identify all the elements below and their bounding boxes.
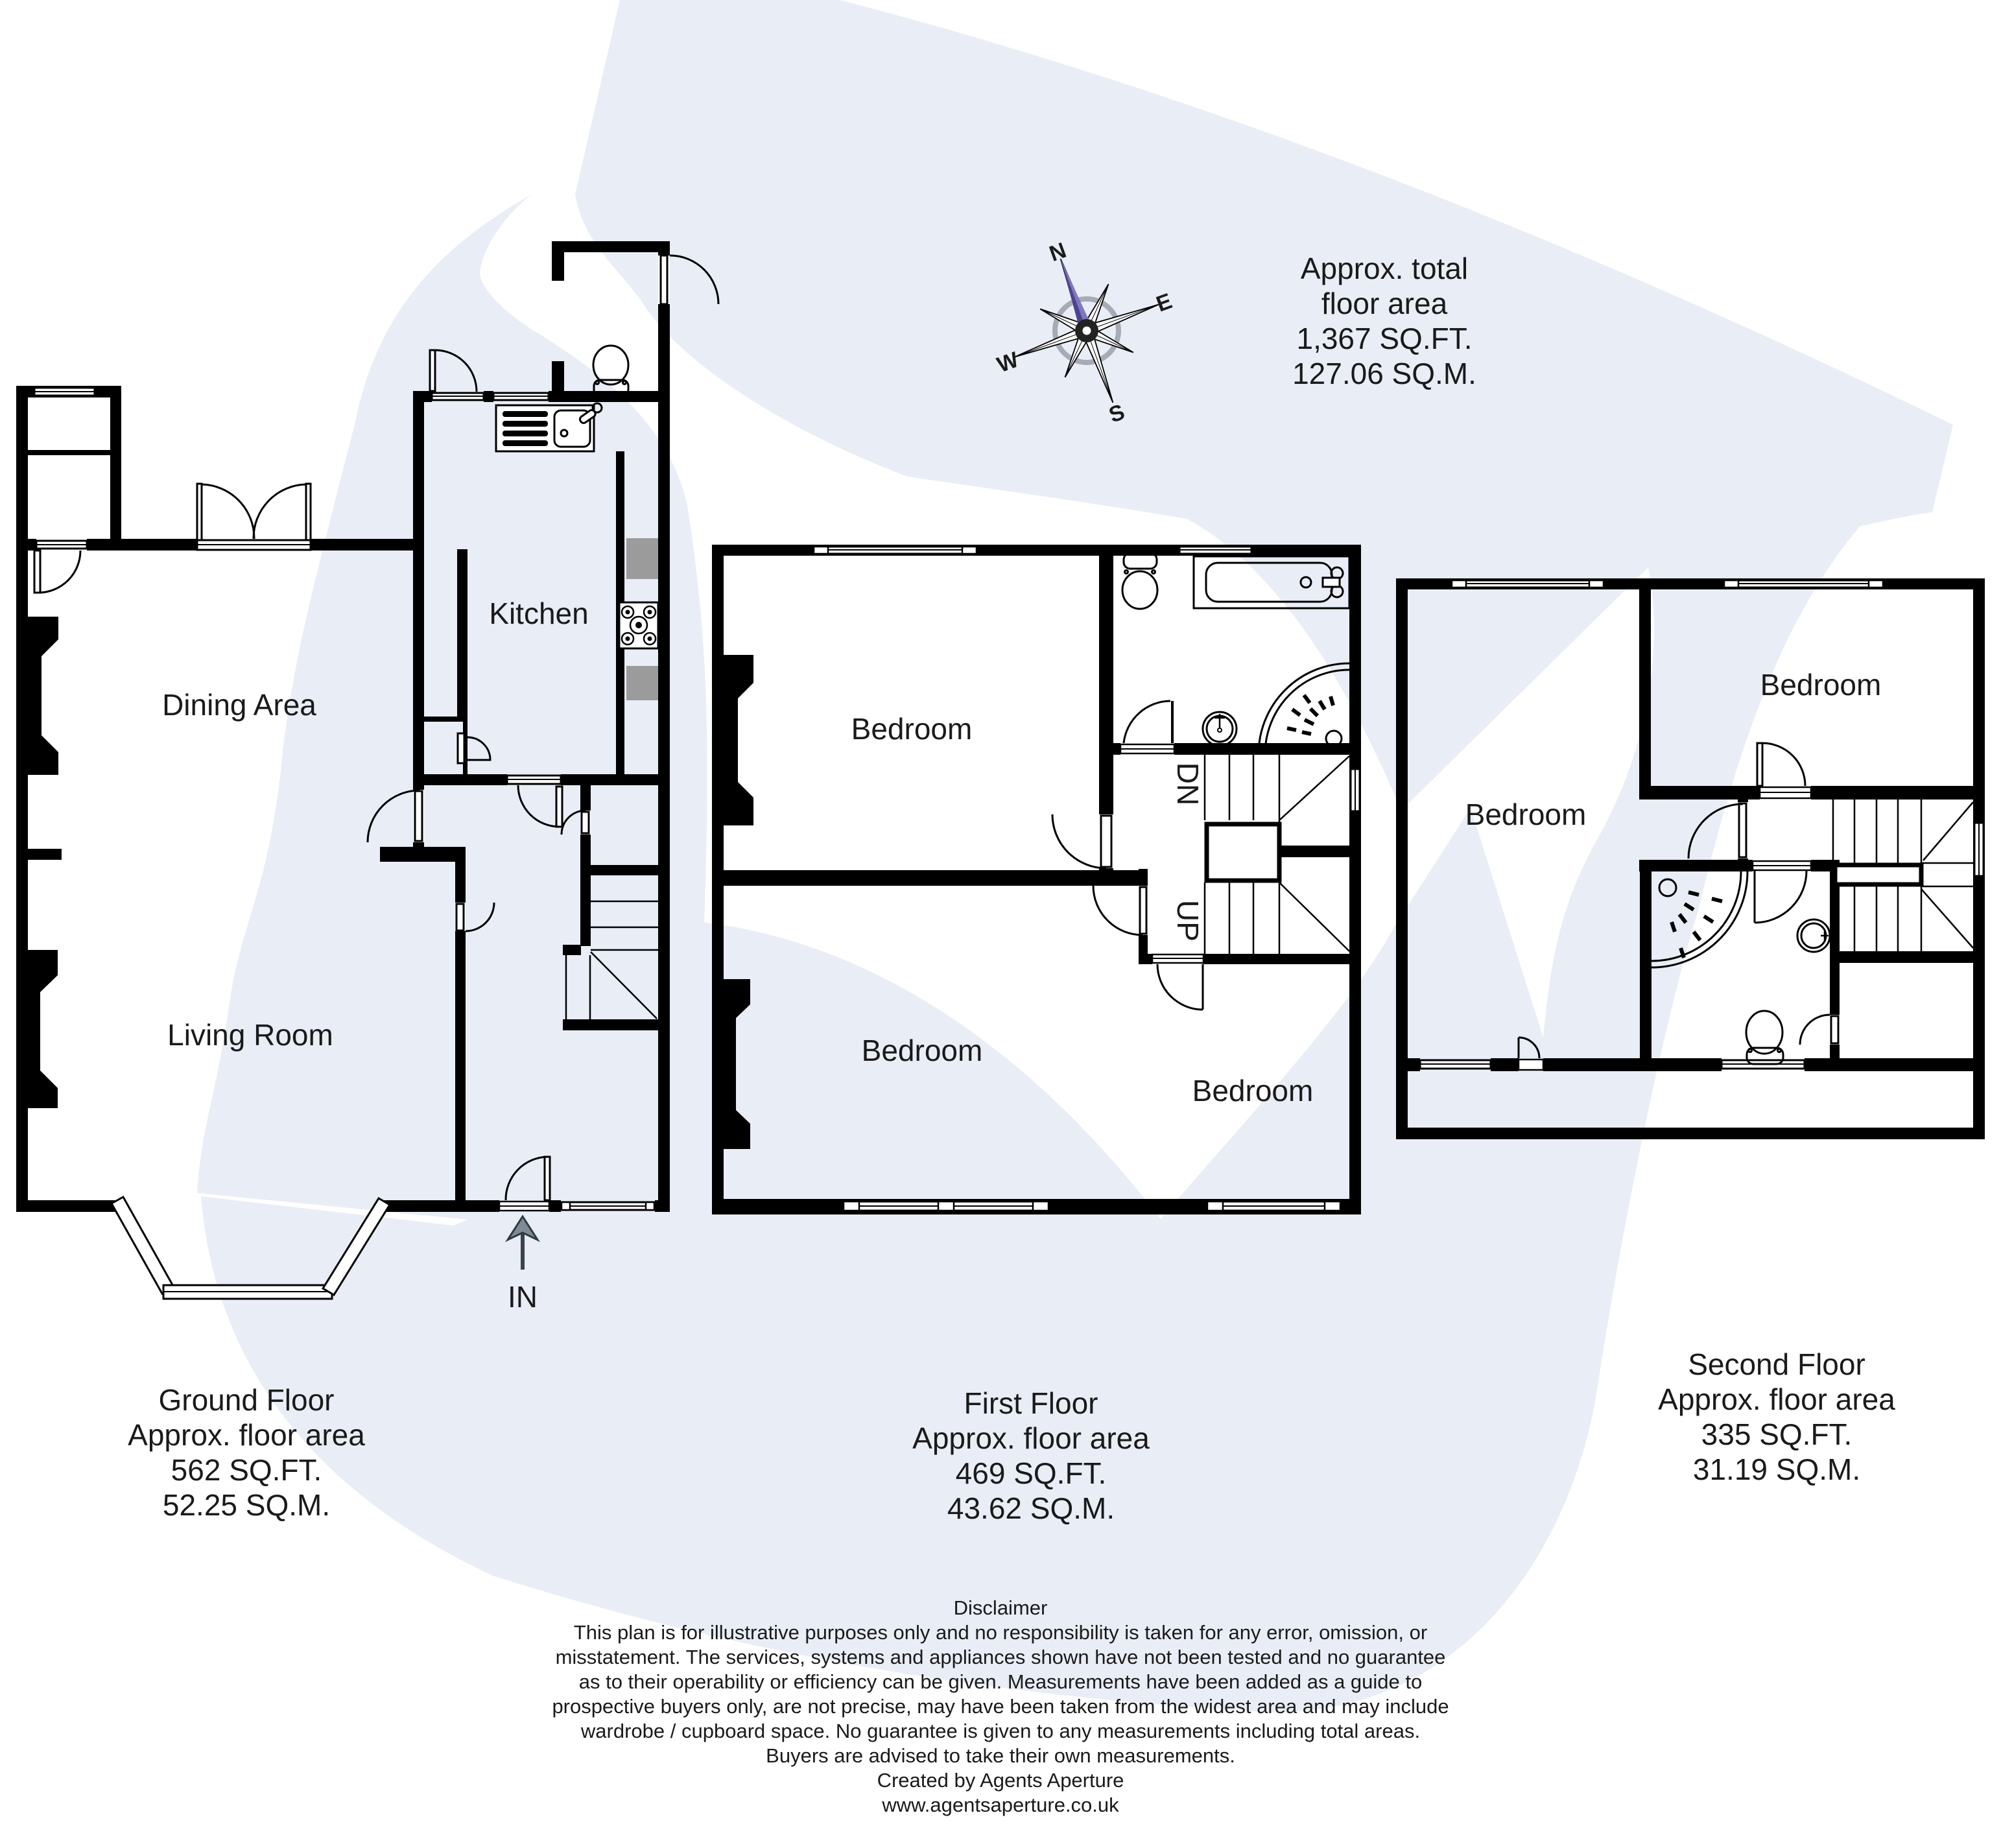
svg-text:Bedroom: Bedroom xyxy=(1465,798,1587,831)
svg-text:469 SQ.FT.: 469 SQ.FT. xyxy=(956,1456,1107,1490)
svg-text:335 SQ.FT.: 335 SQ.FT. xyxy=(1701,1417,1853,1451)
svg-text:Bedroom: Bedroom xyxy=(851,712,973,746)
svg-text:prospective buyers only, are n: prospective buyers only, are not precise… xyxy=(552,1695,1449,1718)
svg-text:as to their operability or eff: as to their operability or efficiency ca… xyxy=(579,1670,1423,1693)
svg-text:Disclaimer: Disclaimer xyxy=(954,1596,1048,1619)
svg-text:Created by Agents Aperture: Created by Agents Aperture xyxy=(877,1769,1124,1792)
svg-text:Approx. total: Approx. total xyxy=(1301,252,1468,285)
svg-text:UP: UP xyxy=(1171,900,1205,942)
svg-text:Living Room: Living Room xyxy=(167,1018,333,1052)
svg-text:43.62 SQ.M.: 43.62 SQ.M. xyxy=(947,1491,1115,1525)
svg-text:52.25 SQ.M.: 52.25 SQ.M. xyxy=(163,1488,330,1522)
svg-text:Bedroom: Bedroom xyxy=(1760,668,1882,702)
svg-text:Second Floor: Second Floor xyxy=(1688,1347,1865,1381)
svg-text:127.06 SQ.M.: 127.06 SQ.M. xyxy=(1292,357,1476,390)
svg-text:Approx. floor area: Approx. floor area xyxy=(1658,1382,1895,1416)
svg-text:562 SQ.FT.: 562 SQ.FT. xyxy=(171,1453,322,1487)
svg-text:Bedroom: Bedroom xyxy=(1192,1074,1314,1108)
svg-text:Kitchen: Kitchen xyxy=(489,597,588,630)
svg-text:Dining Area: Dining Area xyxy=(162,688,316,722)
svg-text:Approx. floor area: Approx. floor area xyxy=(912,1421,1150,1455)
svg-text:wardrobe / cupboard space. No: wardrobe / cupboard space. No guarantee … xyxy=(580,1720,1420,1742)
svg-text:misstatement. The services, sy: misstatement. The services, systems and … xyxy=(556,1646,1446,1668)
svg-text:31.19 SQ.M.: 31.19 SQ.M. xyxy=(1693,1452,1860,1486)
svg-text:DN: DN xyxy=(1171,763,1205,805)
svg-text:www.agentsaperture.co.uk: www.agentsaperture.co.uk xyxy=(881,1794,1119,1816)
svg-text:1,367 SQ.FT.: 1,367 SQ.FT. xyxy=(1296,322,1472,355)
svg-text:Approx. floor area: Approx. floor area xyxy=(128,1418,365,1452)
svg-text:Buyers are advised to take the: Buyers are advised to take their own mea… xyxy=(766,1744,1235,1767)
svg-text:First Floor: First Floor xyxy=(964,1386,1098,1420)
svg-text:floor area: floor area xyxy=(1321,287,1448,320)
svg-text:IN: IN xyxy=(508,1280,538,1314)
svg-text:Ground Floor: Ground Floor xyxy=(158,1383,334,1417)
svg-text:This plan is for illustrative: This plan is for illustrative purposes o… xyxy=(574,1621,1427,1644)
svg-text:Bedroom: Bedroom xyxy=(862,1034,983,1067)
